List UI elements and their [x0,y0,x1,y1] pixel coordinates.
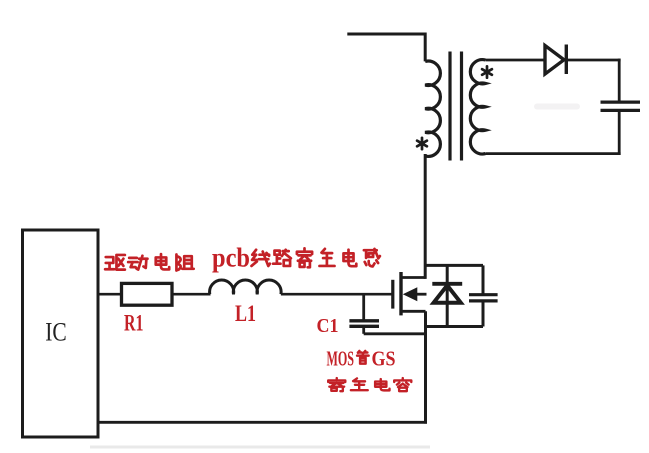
svg-text:R1: R1 [124,311,144,336]
svg-text:L1: L1 [235,301,256,326]
svg-text:C1: C1 [317,315,339,337]
svg-text:GS: GS [372,347,396,371]
svg-text:IC: IC [45,318,66,347]
svg-text:pcb: pcb [212,242,250,273]
svg-text:MOS: MOS [327,347,355,371]
